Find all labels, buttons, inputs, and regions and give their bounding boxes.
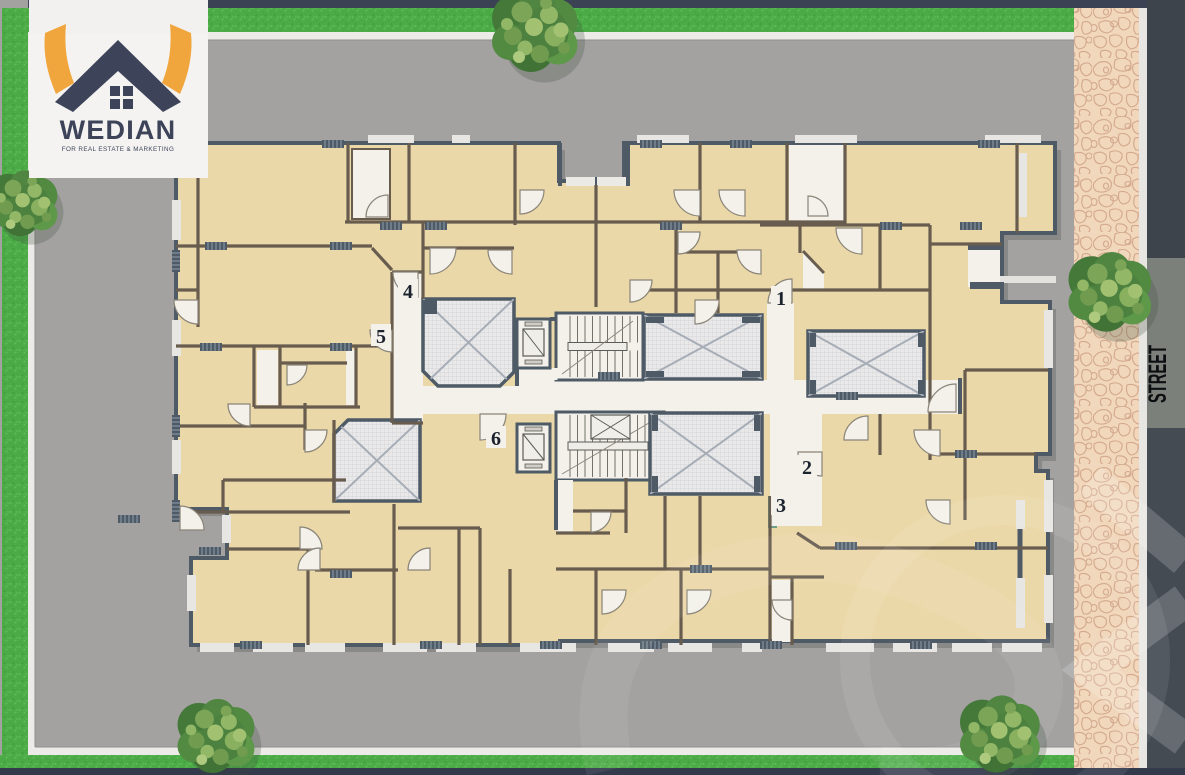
svg-text:WEDIAN: WEDIAN [60,115,177,145]
svg-text:STREET: STREET [1144,345,1172,403]
svg-text:1: 1 [776,288,786,310]
svg-text:6: 6 [491,428,501,450]
svg-text:2: 2 [802,457,812,479]
svg-text:3: 3 [776,495,786,517]
svg-text:4: 4 [403,281,413,303]
svg-text:5: 5 [376,326,386,348]
svg-text:FOR REAL ESTATE & MARKETING: FOR REAL ESTATE & MARKETING [62,146,175,153]
